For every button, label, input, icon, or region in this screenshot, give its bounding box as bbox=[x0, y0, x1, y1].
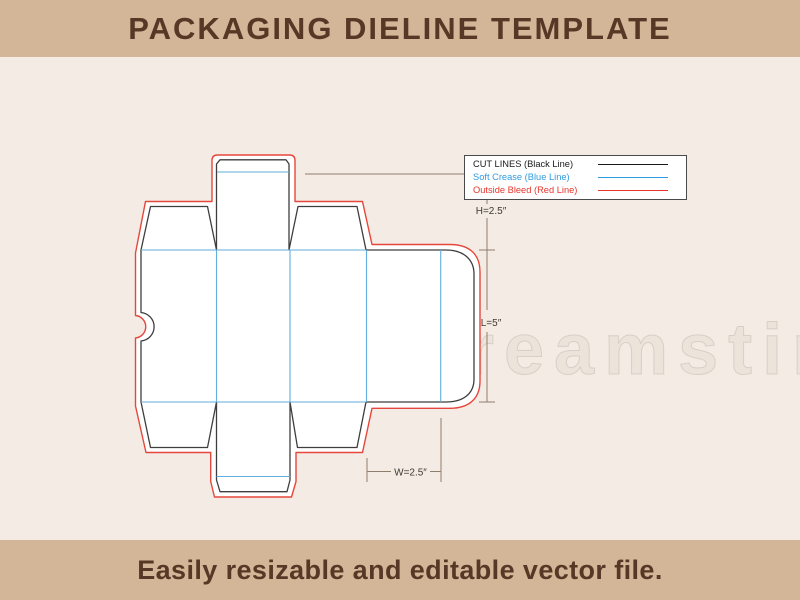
dim-width-label: W=2.5″ bbox=[394, 468, 427, 479]
dieline-svg: H=2.5″ L=5″ W=2.5″ bbox=[0, 57, 800, 540]
page-title: PACKAGING DIELINE TEMPLATE bbox=[128, 11, 671, 47]
legend-line-sample-bleed bbox=[598, 190, 668, 191]
legend-line-sample-crease bbox=[598, 177, 668, 178]
page: dreamstime dreamstime bbox=[0, 0, 800, 600]
dim-length-label: L=5″ bbox=[481, 318, 502, 329]
dieline-canvas: dreamstime dreamstime bbox=[0, 57, 800, 540]
legend-line-sample-cut bbox=[598, 164, 668, 165]
legend-label-cut: CUT LINES (Black Line) bbox=[473, 158, 573, 171]
legend-item-cut: CUT LINES (Black Line) bbox=[465, 158, 686, 171]
bottom-banner: Easily resizable and editable vector fil… bbox=[0, 540, 800, 600]
top-banner: PACKAGING DIELINE TEMPLATE bbox=[0, 0, 800, 57]
legend-item-crease: Soft Crease (Blue Line) bbox=[465, 171, 686, 184]
legend-label-crease: Soft Crease (Blue Line) bbox=[473, 171, 570, 184]
legend-item-bleed: Outside Bleed (Red Line) bbox=[465, 184, 686, 197]
dim-height-label: H=2.5″ bbox=[476, 206, 507, 217]
legend-box: CUT LINES (Black Line) Soft Crease (Blue… bbox=[464, 155, 687, 200]
legend-label-bleed: Outside Bleed (Red Line) bbox=[473, 184, 577, 197]
footer-text: Easily resizable and editable vector fil… bbox=[137, 555, 663, 586]
